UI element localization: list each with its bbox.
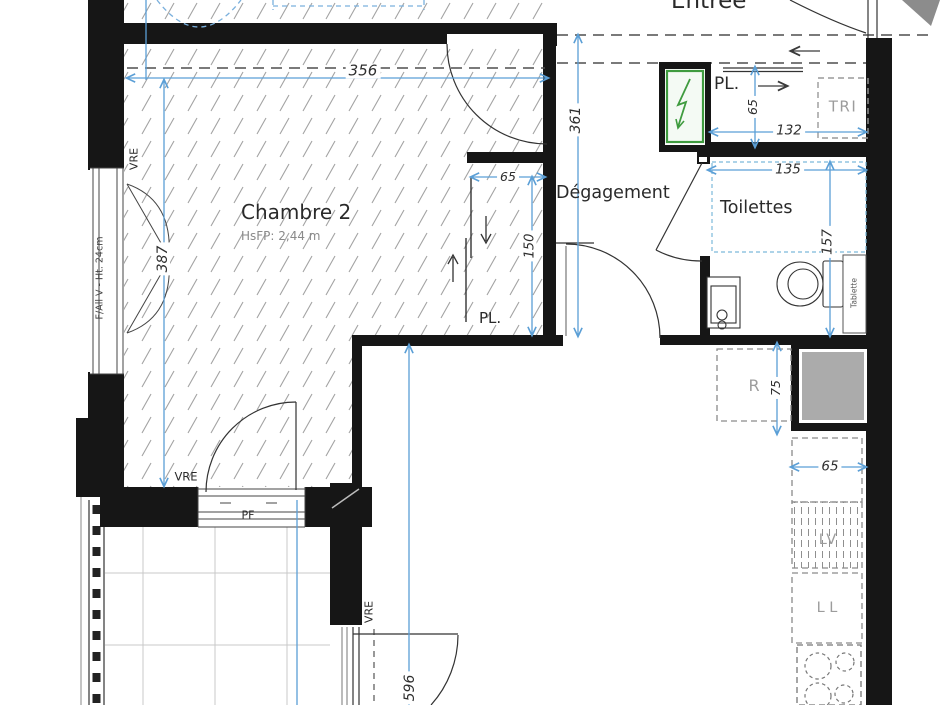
technical-shaft bbox=[791, 341, 875, 431]
dim-label-387: 387 bbox=[156, 243, 170, 276]
cooktop-box bbox=[797, 645, 861, 705]
room-label-chambre2: Chambre 2 bbox=[241, 202, 351, 222]
dim-label-65-kitchen: 65 bbox=[818, 460, 841, 474]
door-jamb-notch bbox=[699, 157, 707, 162]
door-arc-degagement bbox=[566, 244, 660, 338]
dim-label-150: 150 bbox=[524, 231, 537, 262]
chambre2-ceiling-note: HsFP: 2,44 m bbox=[241, 230, 321, 242]
pf-label: PF bbox=[242, 510, 255, 521]
dim-label-361: 361 bbox=[569, 104, 583, 137]
window-sejour bbox=[342, 627, 374, 705]
toilet-fixture bbox=[777, 261, 843, 307]
vre-label-bottom: VRE bbox=[174, 471, 197, 483]
electrical-panel bbox=[659, 62, 711, 152]
sink-fixture bbox=[707, 277, 740, 329]
window-left-label: F/All V - Ht. 24cm bbox=[95, 237, 105, 320]
closet-label-entree: PL. bbox=[714, 76, 739, 93]
closet-label-chambre: PL. bbox=[479, 311, 501, 326]
entry-closet-rail bbox=[723, 68, 803, 72]
vre-label-left: VRE bbox=[129, 148, 140, 170]
dim-label-135: 135 bbox=[772, 163, 804, 177]
room-label-toilettes: Toilettes bbox=[720, 200, 793, 218]
dim-label-356: 356 bbox=[346, 64, 381, 79]
dim-label-65-entry: 65 bbox=[747, 96, 760, 118]
dim-label-157: 157 bbox=[821, 226, 835, 258]
dim-label-75: 75 bbox=[770, 377, 783, 399]
dim-label-132: 132 bbox=[773, 124, 805, 138]
dim-label-65-closet: 65 bbox=[497, 171, 519, 184]
dim-label-596: 596 bbox=[403, 672, 417, 705]
tablette-label: Tablette bbox=[850, 278, 858, 308]
balcony bbox=[105, 527, 330, 705]
room-label-degagement: Dégagement bbox=[556, 185, 670, 203]
floor-plan: Chambre 2 HsFP: 2,44 m Dégagement Toilet… bbox=[0, 0, 940, 705]
washer-label: L L bbox=[817, 601, 838, 616]
door-leaf-toilettes bbox=[656, 163, 702, 250]
door-arc-sejour bbox=[431, 635, 458, 705]
door-arc-toilettes bbox=[656, 250, 702, 261]
balcony-railing bbox=[81, 497, 104, 705]
tri-label: TRI bbox=[829, 100, 858, 115]
dishwasher-label: LV bbox=[819, 533, 837, 548]
door-arc-entree bbox=[790, 0, 866, 33]
room-label-entree: Entrée bbox=[671, 0, 746, 13]
cooktop-burners bbox=[805, 653, 854, 705]
entry-door-triangle bbox=[902, 0, 940, 26]
chambre2-floor-hatch bbox=[123, 0, 553, 487]
vre-label-sejour: VRE bbox=[364, 601, 375, 623]
floorplan-canvas bbox=[0, 0, 940, 705]
fridge-label: R bbox=[748, 378, 759, 394]
